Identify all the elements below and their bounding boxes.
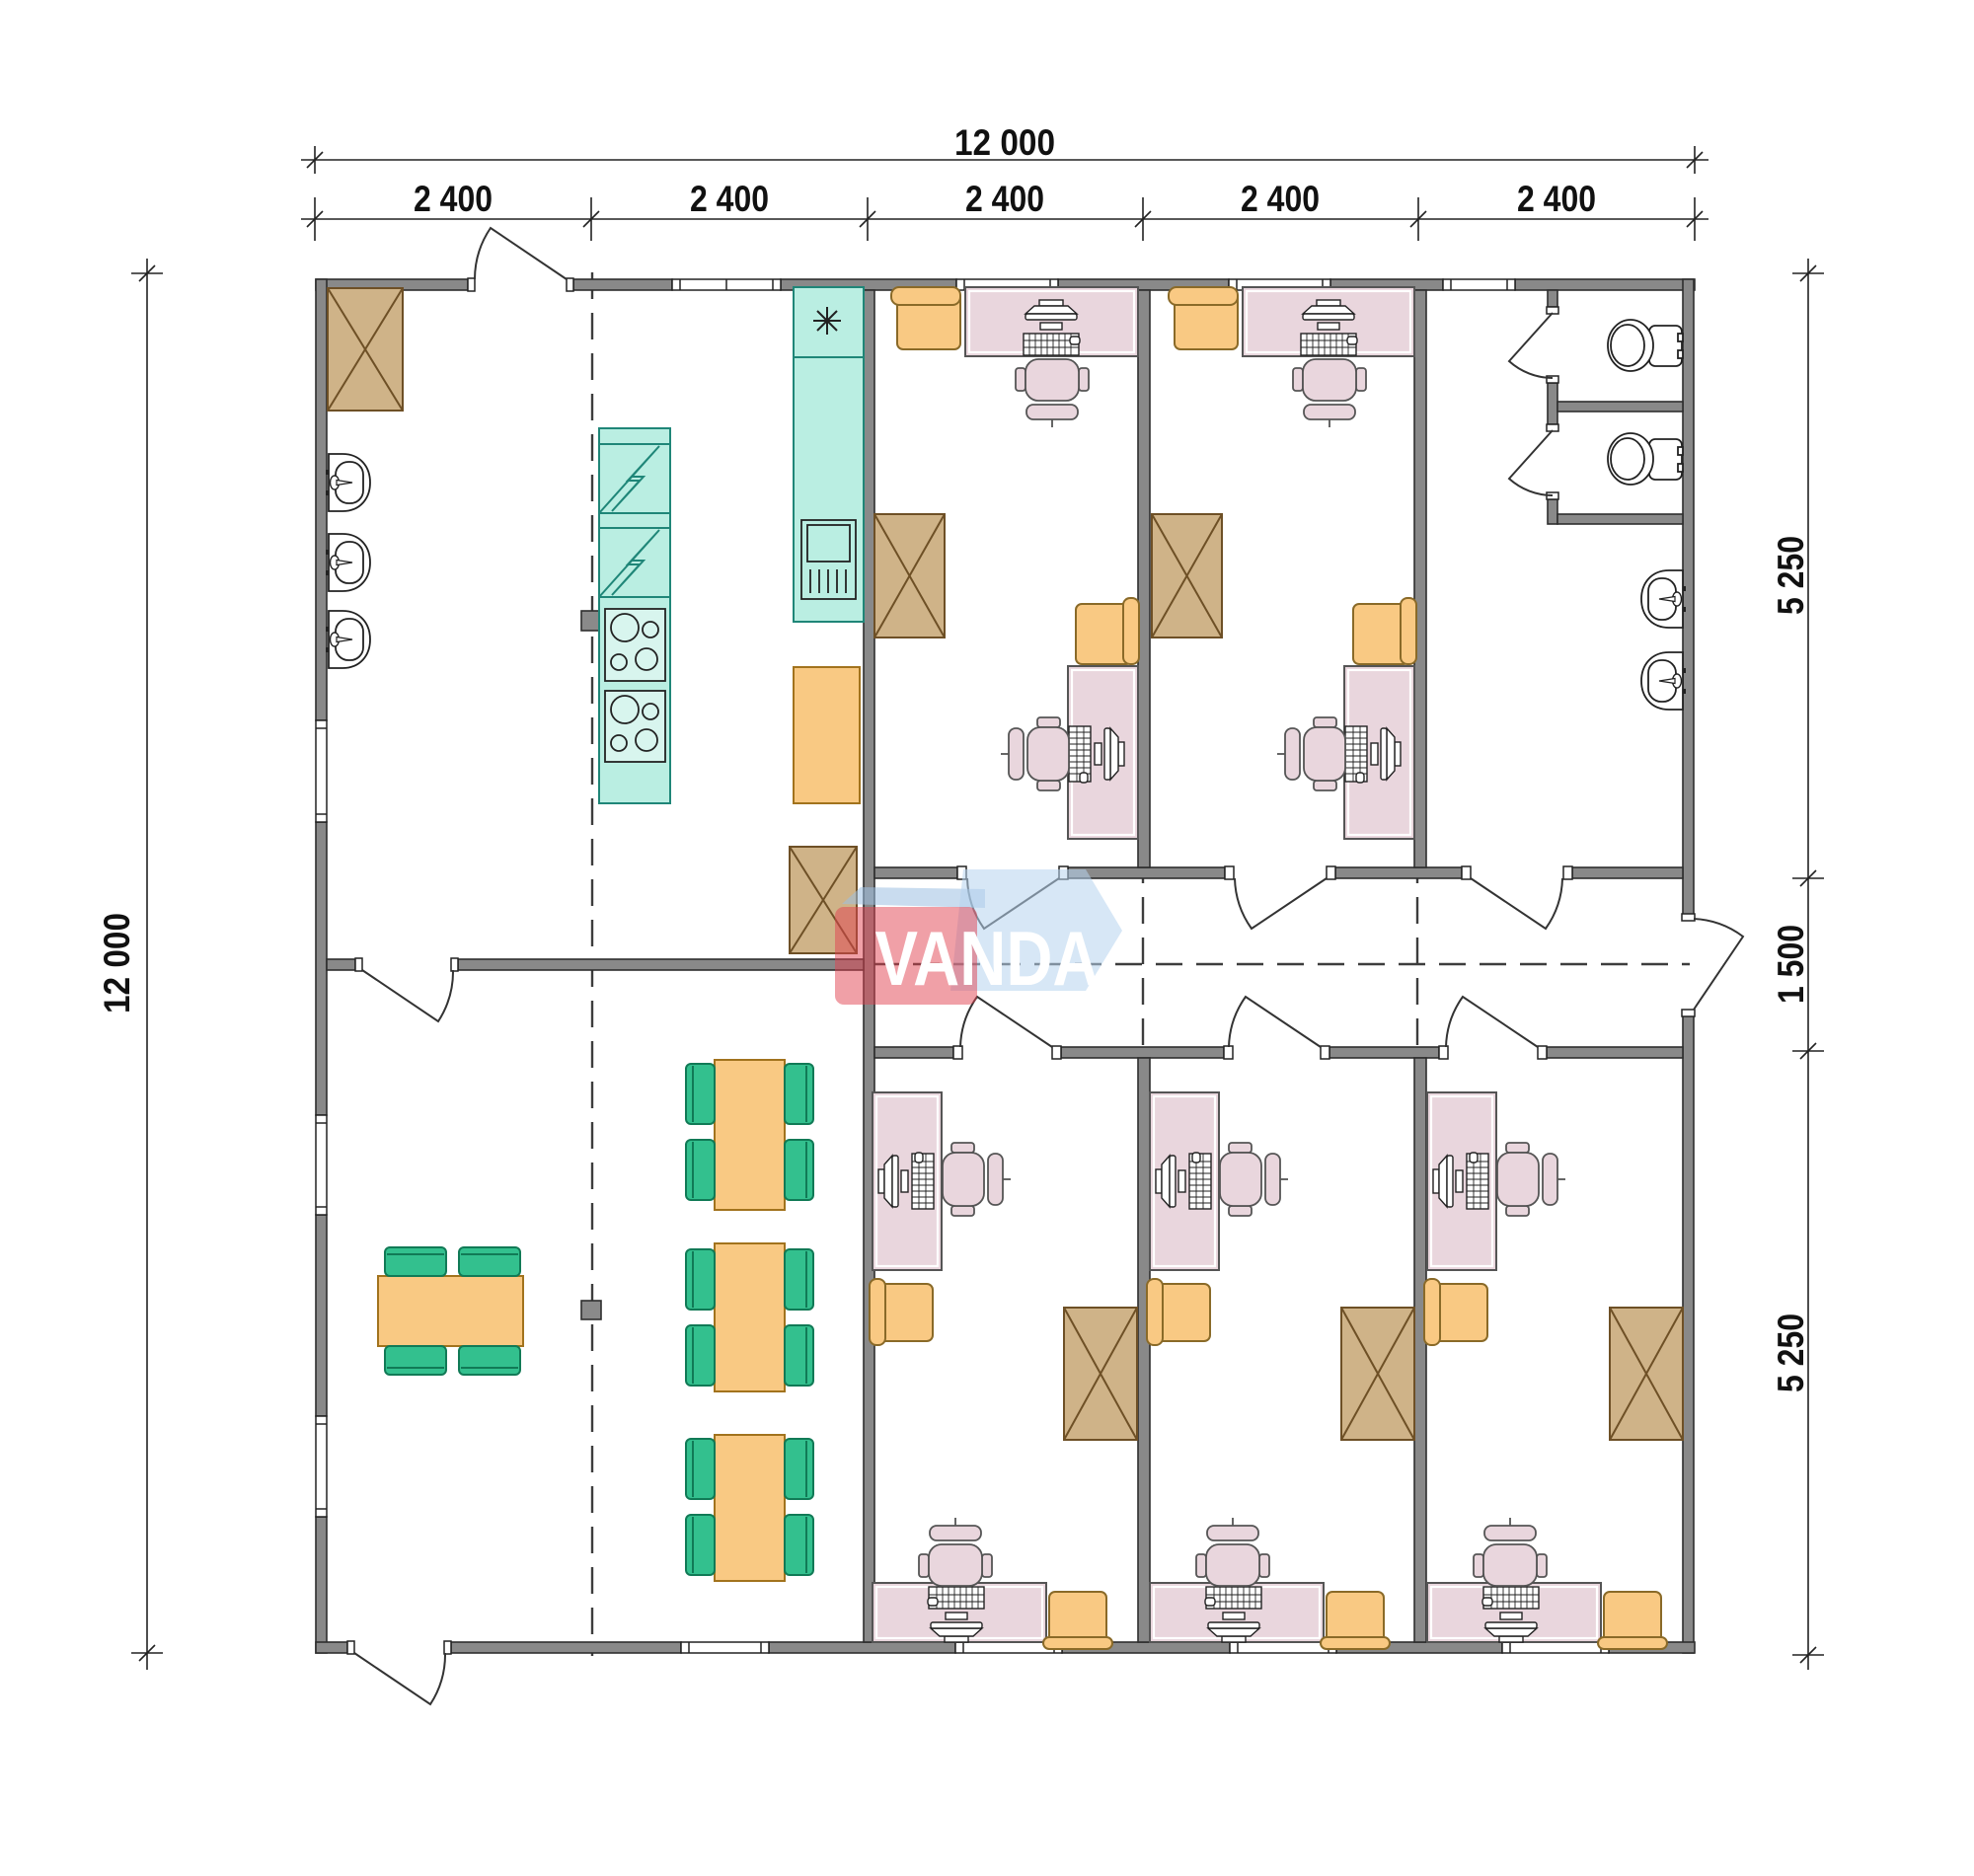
svg-text:12 000: 12 000 <box>954 122 1055 163</box>
svg-text:2 400: 2 400 <box>965 179 1044 219</box>
svg-text:5 250: 5 250 <box>1771 536 1811 615</box>
svg-text:2 400: 2 400 <box>690 179 769 219</box>
svg-text:12 000: 12 000 <box>97 913 137 1013</box>
svg-text:2 400: 2 400 <box>414 179 493 219</box>
svg-text:2 400: 2 400 <box>1517 179 1596 219</box>
svg-text:1 500: 1 500 <box>1771 925 1811 1004</box>
svg-text:2 400: 2 400 <box>1241 179 1320 219</box>
svg-text:VANDA: VANDA <box>875 915 1100 1002</box>
svg-text:5 250: 5 250 <box>1771 1313 1811 1392</box>
